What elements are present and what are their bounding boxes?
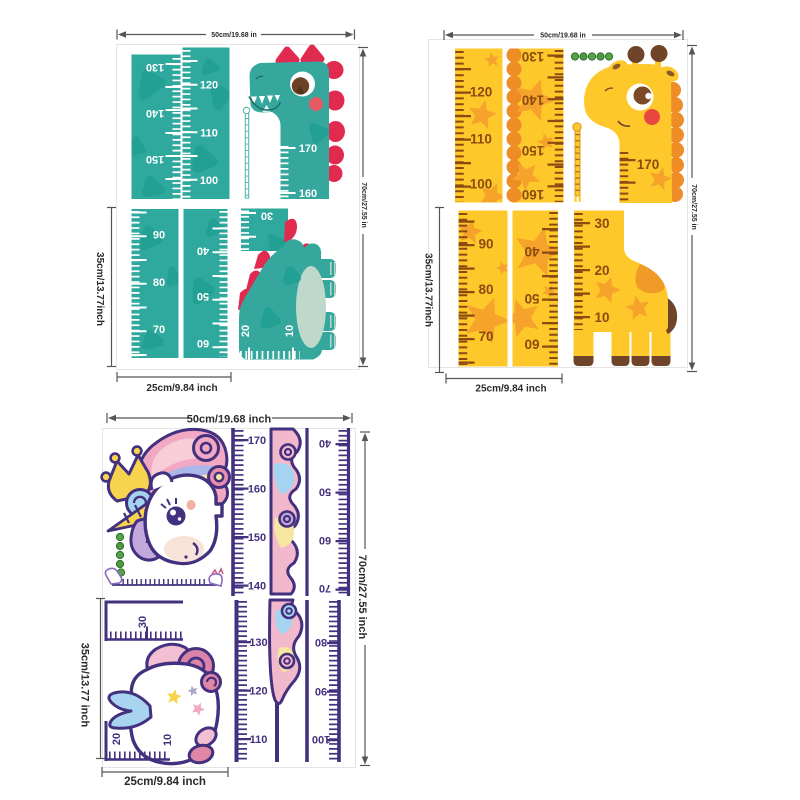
svg-text:80: 80 [153, 277, 165, 289]
svg-text:50cm/19.68 in: 50cm/19.68 in [211, 32, 257, 39]
svg-text:50cm/19.68 inch: 50cm/19.68 inch [187, 414, 272, 426]
svg-text:90: 90 [315, 685, 327, 697]
svg-text:25cm/9.84 inch: 25cm/9.84 inch [146, 383, 217, 394]
svg-text:35cm/13.77inch: 35cm/13.77inch [94, 252, 105, 326]
svg-text:30: 30 [137, 616, 149, 628]
svg-text:110: 110 [470, 132, 492, 147]
svg-text:35cm/13.77inch: 35cm/13.77inch [423, 253, 434, 327]
svg-text:60: 60 [197, 337, 209, 349]
svg-text:130: 130 [146, 61, 164, 73]
svg-text:160: 160 [522, 187, 545, 202]
svg-text:40: 40 [197, 245, 209, 257]
svg-text:80: 80 [478, 282, 493, 297]
svg-text:110: 110 [200, 128, 218, 140]
svg-text:110: 110 [250, 734, 268, 746]
svg-text:35cm/13.77 inch: 35cm/13.77 inch [79, 643, 91, 728]
svg-text:130: 130 [522, 49, 545, 64]
svg-text:30: 30 [261, 210, 273, 222]
svg-text:25cm/9.84 inch: 25cm/9.84 inch [475, 384, 546, 395]
svg-text:90: 90 [478, 237, 493, 252]
svg-text:50: 50 [524, 291, 539, 306]
svg-text:50cm/19.68 in: 50cm/19.68 in [540, 33, 586, 40]
svg-text:70: 70 [478, 329, 493, 344]
svg-text:140: 140 [248, 581, 266, 593]
svg-text:20: 20 [240, 325, 252, 337]
svg-text:50: 50 [319, 486, 331, 498]
svg-text:150: 150 [522, 143, 545, 158]
svg-text:60: 60 [524, 337, 539, 352]
svg-text:100: 100 [312, 733, 330, 745]
svg-text:170: 170 [299, 143, 317, 155]
svg-text:150: 150 [146, 153, 164, 165]
svg-text:70: 70 [319, 582, 331, 594]
svg-text:120: 120 [200, 80, 218, 92]
svg-text:150: 150 [248, 532, 266, 544]
svg-text:120: 120 [470, 85, 493, 100]
svg-text:140: 140 [146, 107, 164, 119]
svg-text:90: 90 [153, 230, 165, 242]
svg-text:10: 10 [162, 734, 174, 746]
svg-text:100: 100 [470, 177, 493, 192]
svg-text:100: 100 [200, 175, 218, 187]
svg-text:20: 20 [111, 733, 123, 745]
svg-text:70cm/27.55 inch: 70cm/27.55 inch [356, 555, 368, 640]
svg-text:160: 160 [248, 484, 266, 496]
svg-text:170: 170 [637, 157, 660, 172]
svg-text:25cm/9.84 inch: 25cm/9.84 inch [124, 776, 206, 788]
svg-text:70: 70 [153, 324, 165, 336]
svg-text:10: 10 [284, 325, 296, 337]
svg-text:70cm/27.55 in: 70cm/27.55 in [360, 182, 367, 228]
svg-text:70cm/27.55 in: 70cm/27.55 in [690, 184, 697, 230]
svg-text:160: 160 [299, 188, 317, 200]
svg-text:20: 20 [594, 263, 609, 278]
svg-text:10: 10 [594, 310, 609, 325]
svg-text:120: 120 [249, 686, 267, 698]
svg-text:40: 40 [524, 244, 539, 259]
svg-text:40: 40 [319, 437, 331, 449]
svg-text:170: 170 [248, 435, 266, 447]
svg-text:130: 130 [249, 637, 267, 649]
svg-text:30: 30 [594, 216, 609, 231]
svg-text:60: 60 [319, 534, 331, 546]
svg-text:80: 80 [315, 636, 327, 648]
svg-text:140: 140 [522, 93, 545, 108]
svg-text:50: 50 [197, 290, 209, 302]
